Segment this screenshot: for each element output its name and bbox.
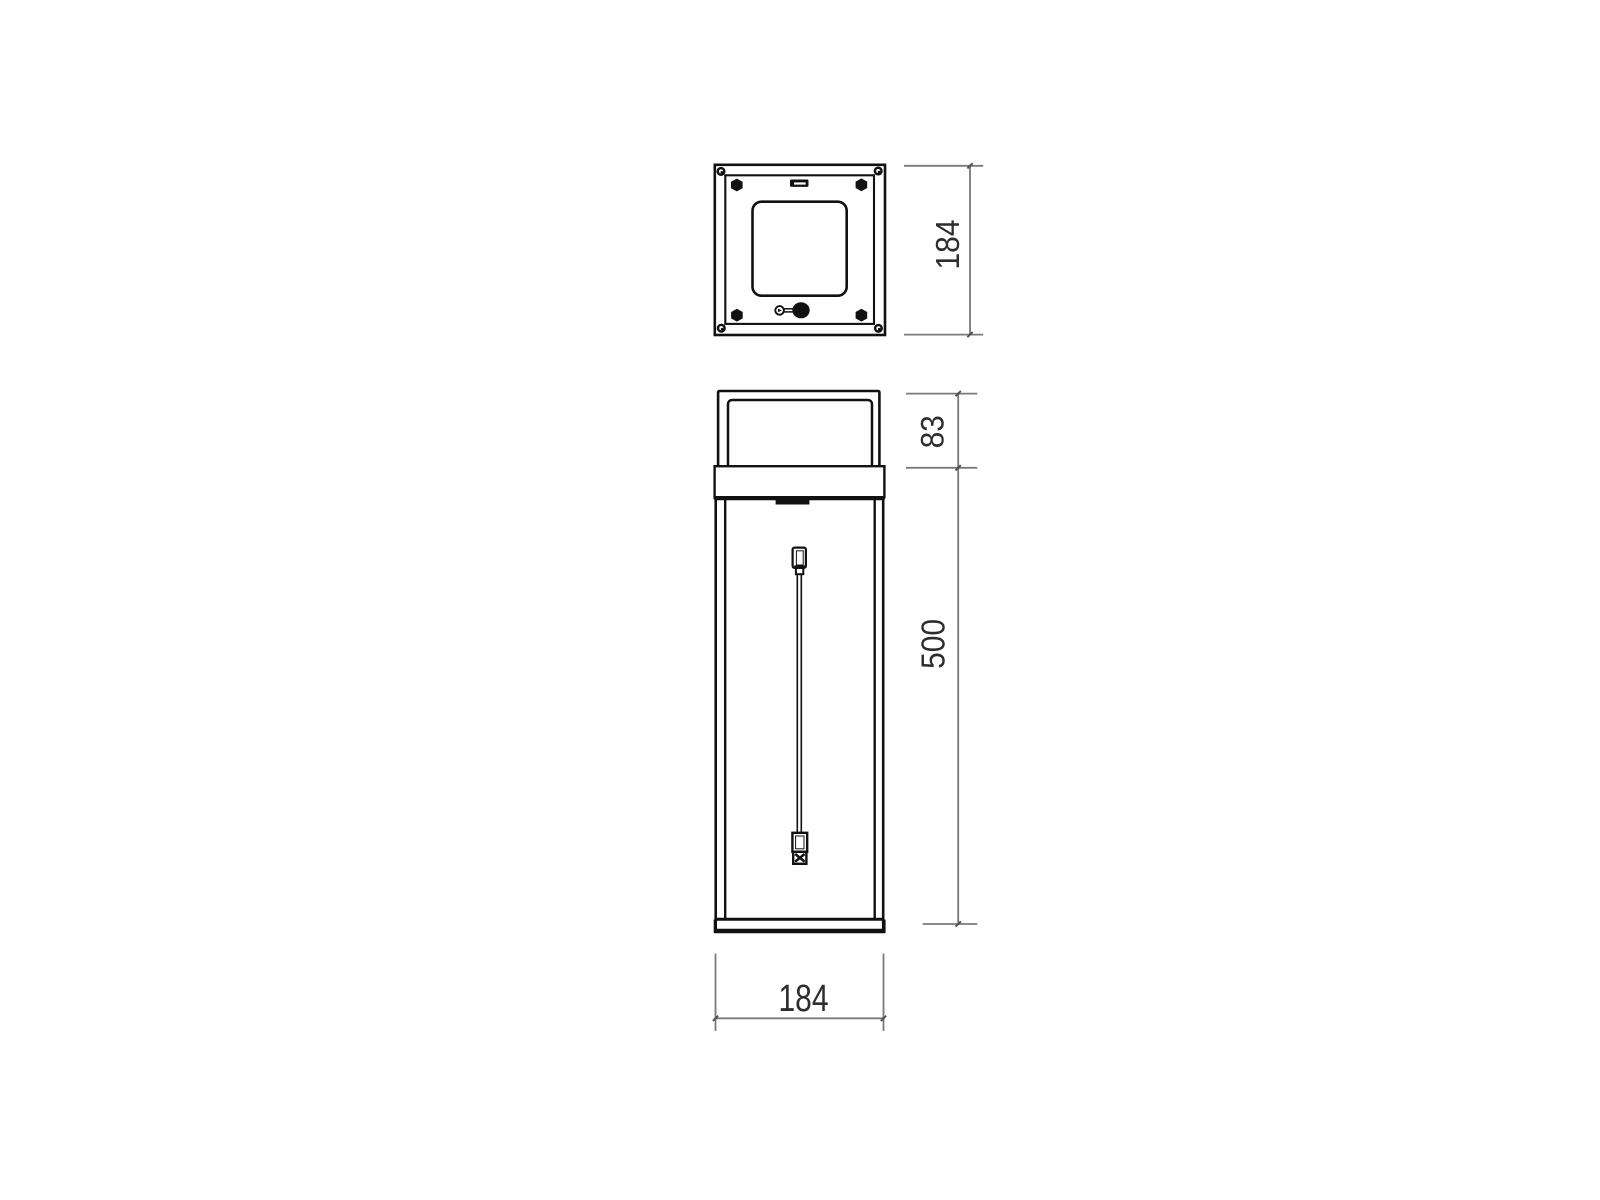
svg-text:500: 500 xyxy=(915,619,952,669)
svg-text:184: 184 xyxy=(930,220,967,270)
svg-text:83: 83 xyxy=(915,415,951,448)
svg-text:184: 184 xyxy=(779,978,829,1020)
